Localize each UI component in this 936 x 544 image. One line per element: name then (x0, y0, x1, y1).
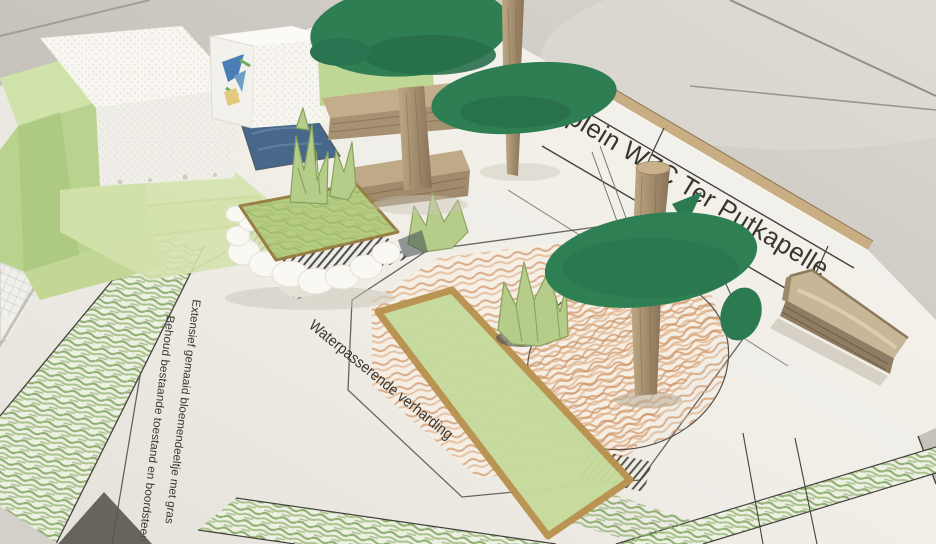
tree-trunk (502, 0, 524, 70)
tree-shadow (372, 195, 468, 215)
photo-canvas: Waterpasserende verharding Extensief gem… (0, 0, 936, 544)
tree-shadow (480, 163, 560, 181)
tree-trunk (631, 296, 661, 396)
model-photo-scene: Waterpasserende verharding Extensief gem… (0, 0, 936, 544)
dowel-top (636, 162, 670, 175)
